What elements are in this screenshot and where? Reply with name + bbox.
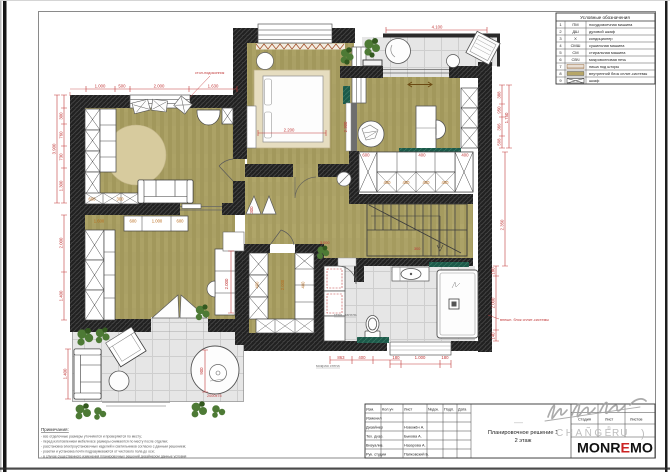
svg-text:180: 180 [441, 355, 449, 360]
svg-text:посудомоечная машина: посудомоечная машина [589, 22, 633, 27]
svg-text:стиральная машина: стиральная машина [589, 50, 626, 55]
svg-text:Лист: Лист [404, 408, 413, 412]
svg-text:400: 400 [403, 180, 411, 185]
svg-text:600: 600 [177, 219, 185, 224]
svg-text:400: 400 [418, 153, 426, 158]
svg-text:Изм.: Изм. [366, 408, 374, 412]
svg-text:Х: Х [574, 36, 577, 41]
svg-text:863: 863 [337, 355, 345, 360]
svg-text:Примечания:: Примечания: [41, 427, 69, 432]
svg-text:Дата: Дата [458, 408, 467, 412]
svg-text:400: 400 [301, 281, 306, 289]
svg-text:2.000: 2.000 [280, 279, 285, 290]
svg-text:300: 300 [59, 112, 64, 120]
svg-text:Тех. дизр.: Тех. дизр. [366, 435, 383, 439]
svg-text:400: 400 [358, 355, 366, 360]
svg-text:сушильная машина: сушильная машина [589, 43, 625, 48]
svg-text:1.630: 1.630 [208, 84, 219, 89]
svg-text:внешн. блок сплит-системы: внешн. блок сплит-системы [500, 318, 549, 322]
svg-text:Листов: Листов [630, 418, 642, 422]
svg-text:1.000: 1.000 [152, 219, 163, 224]
svg-text:400: 400 [384, 180, 392, 185]
svg-text:900: 900 [199, 367, 204, 375]
svg-text:- в случае существенного измен: - в случае существенного изменения плани… [41, 455, 187, 459]
svg-text:2.300: 2.300 [343, 121, 348, 132]
svg-text:600: 600 [130, 219, 138, 224]
svg-text:180: 180 [392, 355, 400, 360]
svg-text:1.400: 1.400 [59, 290, 64, 301]
svg-text:760: 760 [59, 131, 64, 139]
svg-text:1.000: 1.000 [95, 84, 106, 89]
svg-text:2.000: 2.000 [224, 278, 229, 289]
svg-text:Изменил: Изменил [366, 417, 382, 421]
svg-text:388: 388 [497, 91, 502, 99]
svg-text:400: 400 [255, 281, 260, 289]
svg-text:1.750: 1.750 [504, 112, 509, 123]
svg-text:3.900: 3.900 [52, 143, 57, 154]
svg-text:Подп.: Подп. [444, 408, 454, 412]
svg-text:): ) [641, 428, 645, 440]
svg-text:CHAÑGE: CHAÑGE [556, 426, 614, 439]
svg-text:600: 600 [89, 197, 97, 202]
svg-text:внутренний блок сплит-системы: внутренний блок сплит-системы [589, 71, 648, 76]
svg-text:Визуализ.: Визуализ. [366, 444, 383, 448]
svg-text:500: 500 [118, 84, 126, 89]
svg-text:Лист: Лист [605, 418, 614, 422]
svg-text:кондиционер: кондиционер [589, 36, 613, 41]
svg-text:Назарова А.: Назарова А. [404, 444, 426, 448]
svg-text:366: 366 [497, 123, 502, 131]
svg-text:СМ: СМ [572, 50, 578, 55]
svg-text:950: 950 [497, 106, 502, 114]
svg-text:1.600: 1.600 [94, 219, 105, 224]
svg-text:Кол.уч: Кол.уч [382, 408, 393, 412]
svg-text:СВЧ: СВЧ [571, 57, 579, 62]
svg-text:ПМ: ПМ [572, 22, 578, 27]
svg-text:мокрая стена: мокрая стена [316, 364, 341, 368]
svg-text:2.000: 2.000 [59, 237, 64, 248]
svg-text:1.400: 1.400 [63, 368, 68, 379]
svg-text:RU: RU [612, 428, 628, 439]
svg-text:ДШ: ДШ [572, 29, 579, 34]
svg-text:2000х75: 2000х75 [207, 394, 222, 398]
svg-text:®: ® [607, 425, 611, 432]
svg-text:2 этаж: 2 этаж [515, 438, 532, 444]
svg-text:1.000: 1.000 [415, 355, 426, 360]
svg-text:598: 598 [497, 138, 502, 146]
svg-text:- перед изготовлением мебели в: - перед изготовлением мебели все размеры… [41, 440, 168, 444]
svg-text:400: 400 [423, 180, 431, 185]
svg-text:300: 300 [414, 247, 420, 251]
svg-text:микроволновая печь: микроволновая печь [589, 57, 626, 62]
svg-text:Условные обозначения: Условные обозначения [580, 15, 630, 20]
svg-text:Быкова А.: Быкова А. [404, 435, 422, 439]
svg-text:1.300: 1.300 [59, 180, 64, 191]
svg-text:730: 730 [59, 153, 64, 161]
svg-text:ниша под шторы: ниша под шторы [589, 64, 619, 69]
svg-text:шкаф: шкаф [589, 78, 600, 83]
svg-text:4.100: 4.100 [432, 25, 443, 30]
svg-text:Стадия: Стадия [578, 418, 591, 422]
svg-text:№док.: №док. [428, 408, 439, 412]
svg-text:- розетки и установка почти по: - розетки и установка почти подразумеваю… [41, 450, 155, 454]
svg-text:2.200: 2.200 [284, 128, 295, 133]
svg-text:Рук. студии: Рук. студии [366, 453, 386, 457]
svg-text:2.000: 2.000 [154, 84, 165, 89]
svg-text:- расстановка электроустановоч: - расстановка электроустановочных издели… [41, 445, 186, 449]
svg-text:400: 400 [442, 180, 450, 185]
svg-text:MONREMO: MONREMO [577, 441, 653, 456]
svg-text:Дизайнер: Дизайнер [366, 426, 383, 430]
svg-text:духовой шкаф: духовой шкаф [589, 29, 616, 34]
svg-text:180: 180 [491, 267, 496, 275]
svg-text:300: 300 [249, 206, 254, 214]
svg-text:—: — [514, 417, 523, 427]
svg-text:600: 600 [362, 153, 370, 158]
svg-text:СМШ: СМШ [571, 43, 581, 48]
svg-text:Папковский Б.: Папковский Б. [404, 453, 429, 457]
svg-text:3.000: 3.000 [320, 241, 330, 245]
svg-text:140: 140 [491, 332, 496, 340]
svg-text:стол-подоконник: стол-подоконник [195, 71, 225, 75]
svg-text:2.350: 2.350 [500, 219, 505, 230]
svg-text:- все отделочные размеры уточн: - все отделочные размеры уточняются и пр… [41, 435, 142, 439]
svg-text:Новожён А.: Новожён А. [404, 426, 424, 430]
svg-text:300: 300 [117, 197, 125, 202]
svg-text:400: 400 [461, 153, 469, 158]
svg-text:тепл. панель: тепл. панель [334, 313, 357, 317]
svg-text:Планировочное решение 1: Планировочное решение 1 [488, 430, 558, 436]
svg-text:2.000: 2.000 [491, 297, 496, 308]
